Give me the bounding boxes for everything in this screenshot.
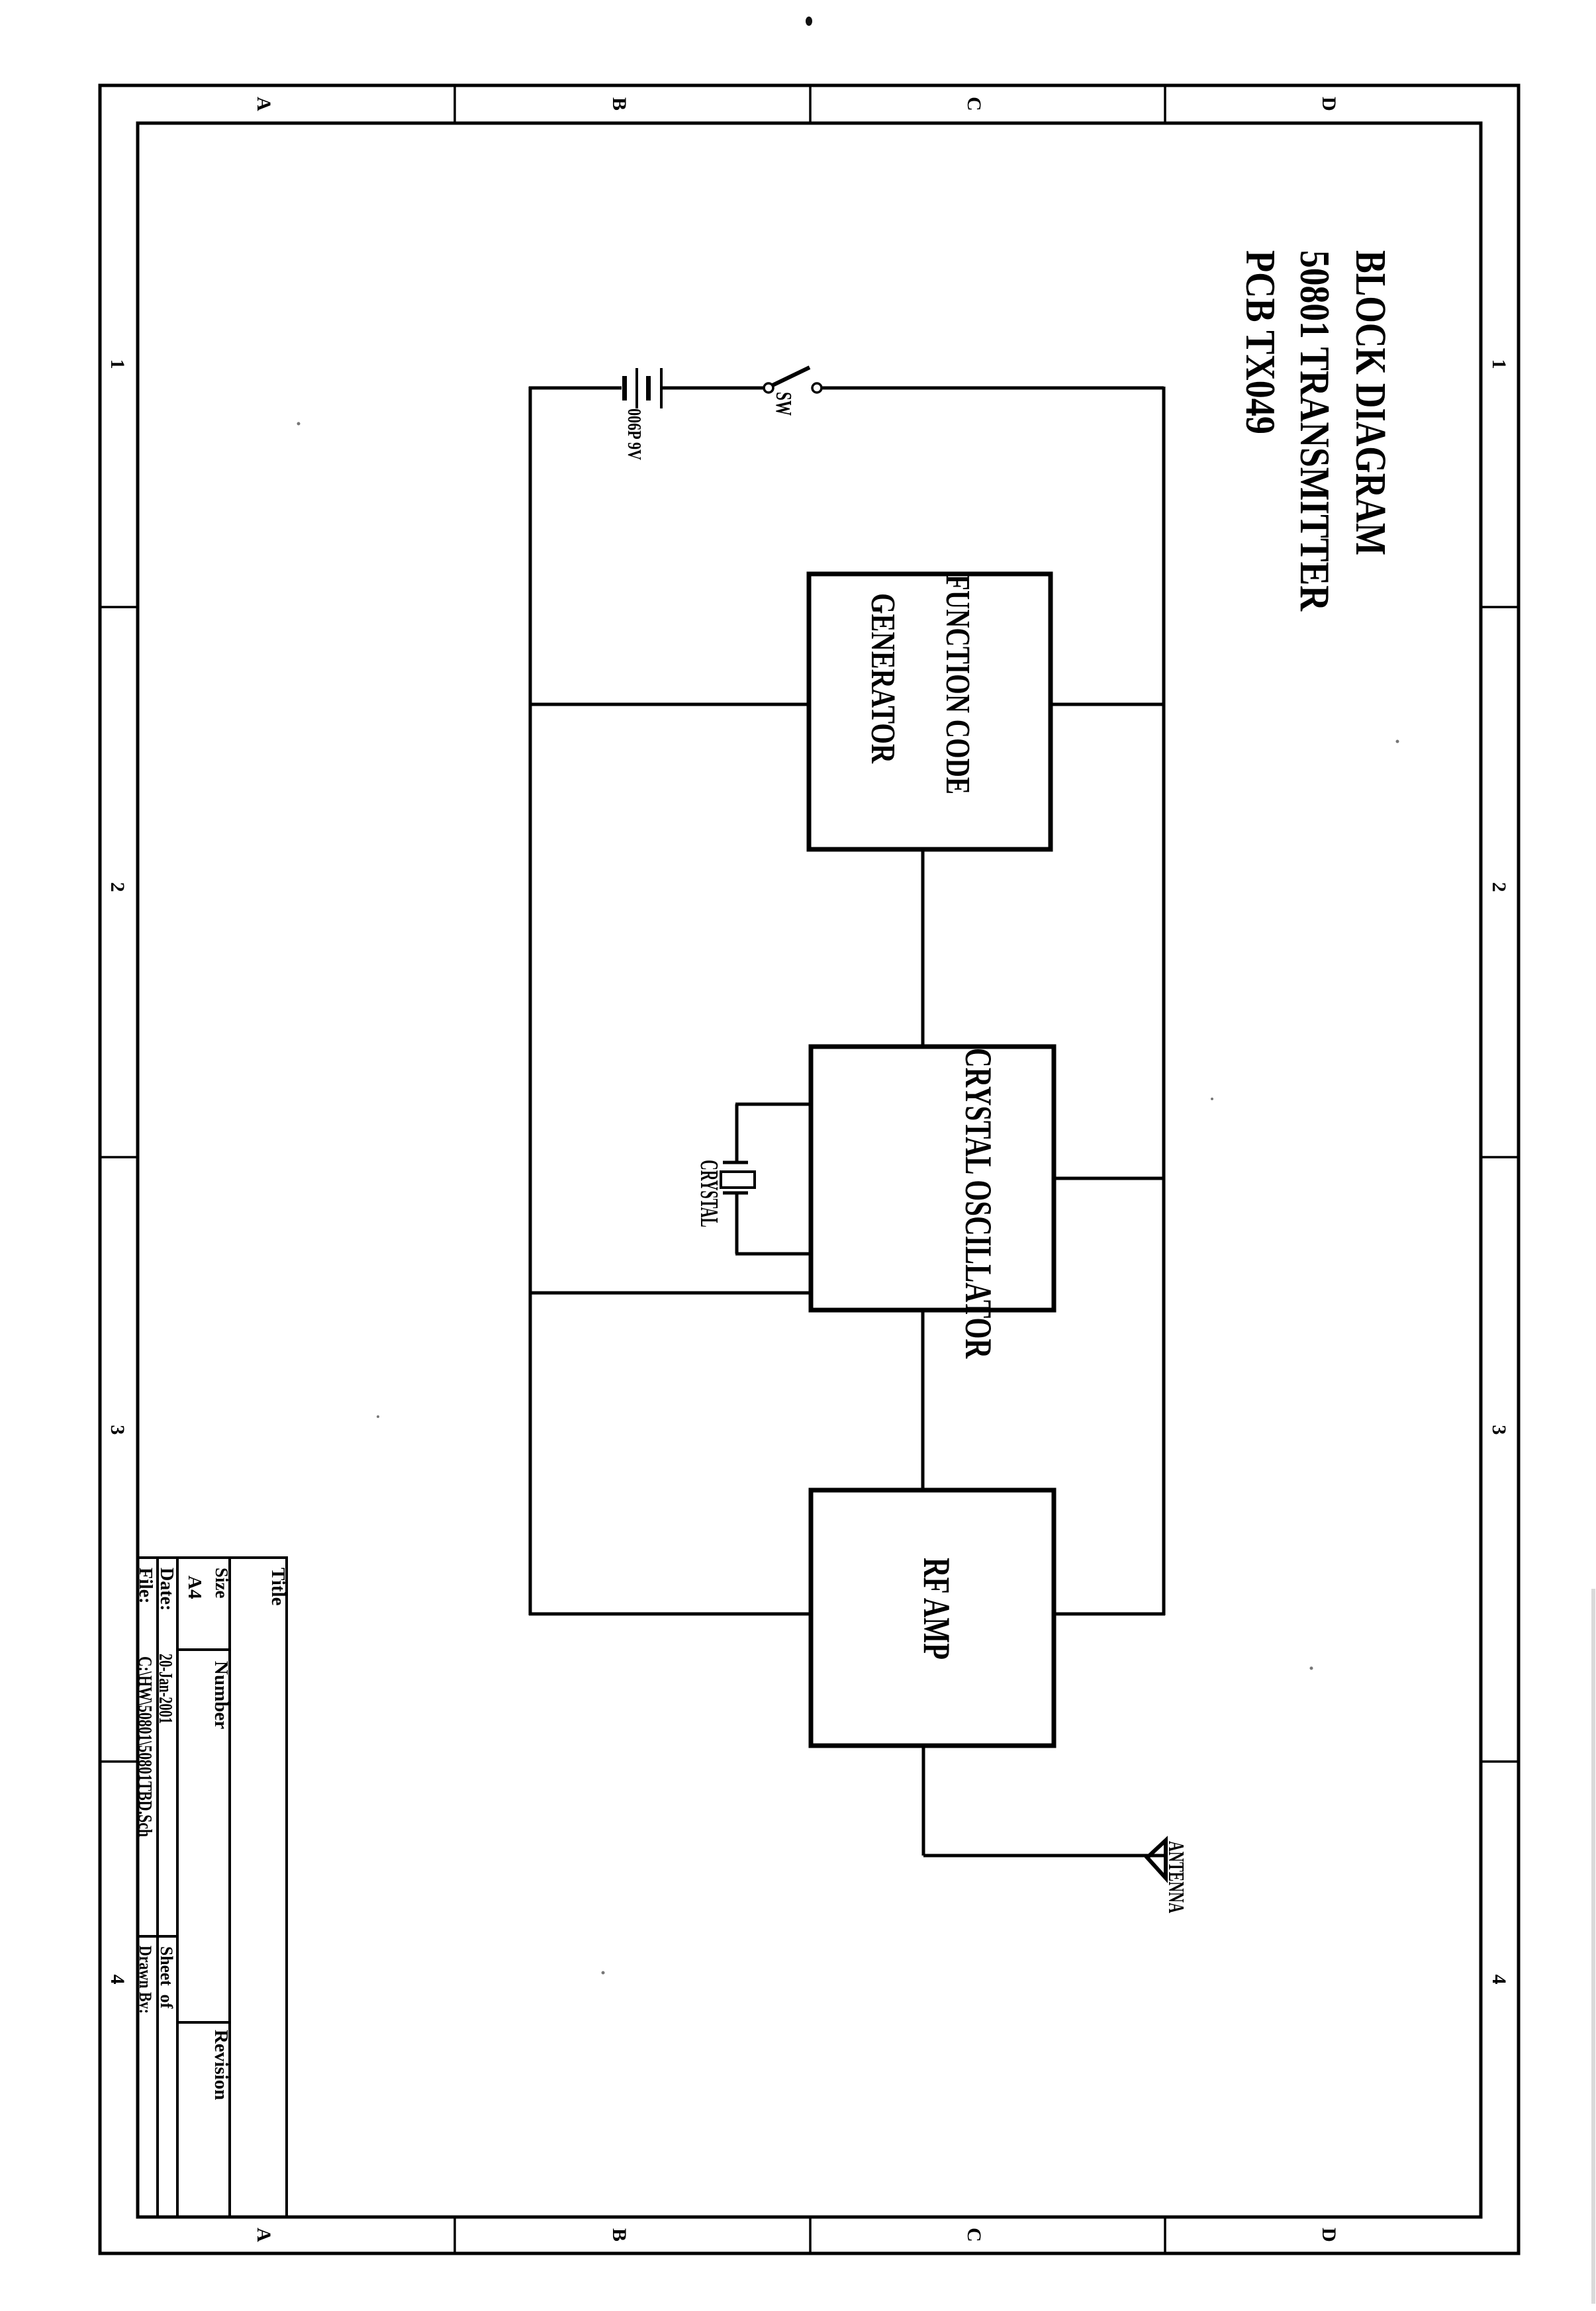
svg-text:D: D bbox=[1318, 97, 1340, 111]
svg-text:4: 4 bbox=[1488, 1975, 1510, 1985]
svg-text:006P 9V: 006P 9V bbox=[624, 408, 644, 460]
svg-text:20-Jan-2001: 20-Jan-2001 bbox=[155, 1654, 175, 1724]
svg-text:Size: Size bbox=[212, 1568, 232, 1599]
svg-text:FUNCTION CODE: FUNCTION CODE bbox=[939, 575, 976, 794]
svg-text:50801 TRANSMITTER: 50801 TRANSMITTER bbox=[1291, 250, 1338, 612]
svg-text:SW: SW bbox=[771, 392, 796, 416]
svg-text:3: 3 bbox=[1488, 1425, 1510, 1435]
svg-text:BLOCK DIAGRAM: BLOCK DIAGRAM bbox=[1346, 250, 1395, 555]
svg-text:PCB TX049: PCB TX049 bbox=[1237, 250, 1284, 434]
svg-text:CRYSTAL OSCILLATOR: CRYSTAL OSCILLATOR bbox=[957, 1048, 999, 1359]
svg-text:RF AMP: RF AMP bbox=[915, 1558, 957, 1660]
svg-text:Revision: Revision bbox=[211, 2030, 232, 2100]
svg-text:B: B bbox=[608, 97, 630, 111]
svg-text:Date:: Date: bbox=[156, 1568, 177, 1611]
svg-text:GENERATOR: GENERATOR bbox=[864, 593, 902, 764]
svg-text:Sheet of: Sheet of bbox=[157, 1946, 176, 2008]
svg-text:A4: A4 bbox=[184, 1576, 205, 1599]
svg-text:1: 1 bbox=[107, 359, 128, 369]
svg-text:A: A bbox=[253, 2228, 275, 2242]
svg-text:2: 2 bbox=[1488, 882, 1510, 892]
svg-text:D: D bbox=[1318, 2228, 1340, 2242]
svg-text:2: 2 bbox=[107, 882, 128, 892]
svg-text:C:\HW\50801\50801TBD.Sch: C:\HW\50801\50801TBD.Sch bbox=[134, 1656, 155, 1837]
svg-text:C: C bbox=[963, 2228, 985, 2242]
svg-text:C: C bbox=[963, 97, 985, 111]
svg-text:ANTENNA: ANTENNA bbox=[1164, 1841, 1188, 1913]
svg-text:B: B bbox=[608, 2228, 630, 2241]
svg-text:Drawn By:: Drawn By: bbox=[136, 1946, 155, 2014]
svg-text:Title: Title bbox=[267, 1568, 289, 1606]
svg-text:4: 4 bbox=[107, 1975, 128, 1985]
svg-text:CRYSTAL: CRYSTAL bbox=[695, 1160, 723, 1227]
svg-text:File:: File: bbox=[135, 1568, 156, 1603]
svg-text:1: 1 bbox=[1488, 359, 1510, 369]
svg-text:3: 3 bbox=[107, 1425, 128, 1435]
svg-text:Number: Number bbox=[211, 1661, 232, 1729]
svg-text:A: A bbox=[253, 97, 275, 111]
